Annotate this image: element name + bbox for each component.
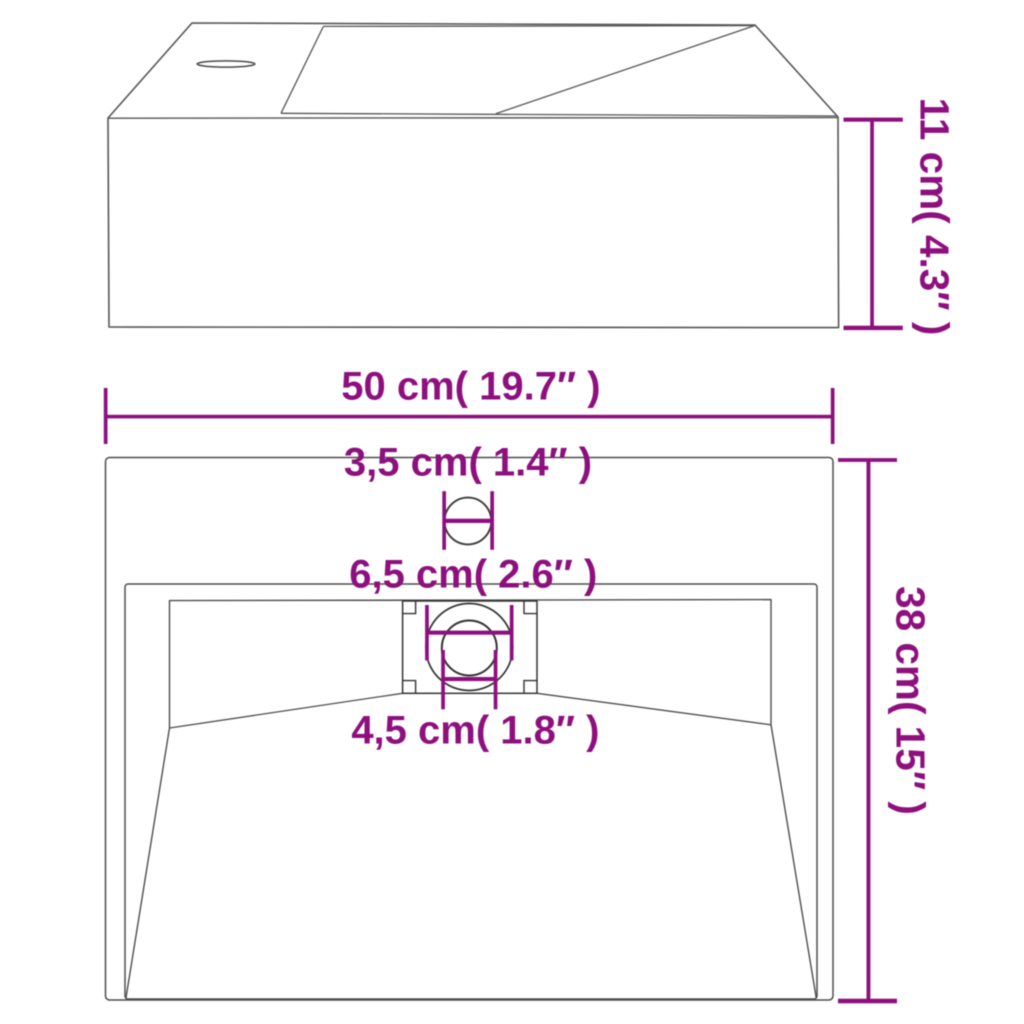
svg-text:3,5 cm( 1.4″ ): 3,5 cm( 1.4″ ) (344, 441, 592, 485)
svg-text:38 cm( 15″ ): 38 cm( 15″ ) (888, 586, 934, 815)
svg-text:11 cm( 4.3″ ): 11 cm( 4.3″ ) (912, 98, 958, 336)
svg-text:6,5 cm( 2.6″ ): 6,5 cm( 2.6″ ) (349, 553, 597, 597)
svg-text:50 cm( 19.7″ ): 50 cm( 19.7″ ) (341, 365, 600, 409)
svg-text:4,5 cm( 1.8″ ): 4,5 cm( 1.8″ ) (351, 709, 599, 753)
